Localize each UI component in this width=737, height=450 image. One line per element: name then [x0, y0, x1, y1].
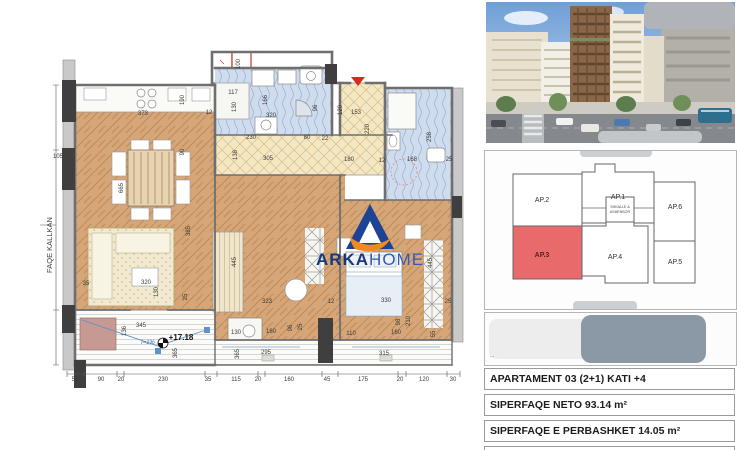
building-render: [486, 2, 735, 143]
bedroom-2: [337, 200, 452, 340]
stamp-note: ...: [490, 353, 494, 359]
svg-text:ARKAHOME: ARKAHOME: [316, 250, 424, 269]
apartment-title: APARTAMENT 03 (2+1) KATI +4: [490, 373, 646, 385]
facade-label: FAQE KALLKAN: [45, 217, 54, 273]
unit-label: AP.4: [608, 254, 622, 261]
stamp-blob-gray: [581, 315, 706, 363]
keyplan-unit-ap4: [582, 220, 648, 283]
svg-text:SHKALLE &: SHKALLE &: [610, 205, 630, 209]
unit-label: AP.1: [611, 194, 625, 201]
unit-label-highlighted: AP.3: [535, 252, 550, 259]
washing-machine-icon: [255, 117, 277, 134]
stamp-box: ...: [484, 312, 737, 366]
info-row-shared-area: SIPERFAQE E PERBASHKET 14.05 m²: [484, 420, 735, 442]
unit-label: AP.5: [668, 259, 682, 266]
bathroom-2: [385, 88, 452, 200]
bathroom-1: [215, 66, 332, 135]
unit-label: AP.2: [535, 197, 549, 204]
corridor: [215, 135, 385, 175]
net-area-value: SIPERFAQE NETO 93.14 m²: [490, 399, 627, 411]
keyplan-unit-ap6: [654, 182, 695, 241]
info-row-apartment: APARTAMENT 03 (2+1) KATI +4: [484, 368, 735, 390]
balcony-1: [75, 310, 215, 365]
key-plan: AP.2 AP.1 AP.6 AP.3 AP.4 AP.5 SHKALLE & …: [484, 150, 737, 310]
shared-area-value: SIPERFAQE E PERBASHKET 14.05 m²: [490, 425, 680, 437]
balcony-2: [215, 340, 452, 365]
unit-label: AP.6: [668, 204, 682, 211]
drawing-sheet: FAQE KALLKAN ARKAHOME 373190901056653851…: [0, 0, 737, 450]
info-row-net-area: SIPERFAQE NETO 93.14 m²: [484, 394, 735, 416]
level-marker-icon: [158, 338, 168, 348]
sofa: [88, 228, 174, 306]
info-row-gross-area: SIPERFAQE BRUTO 107.19 m²: [484, 446, 735, 450]
entry-hall: [340, 77, 385, 135]
svg-text:ASHENSOR: ASHENSOR: [610, 210, 631, 214]
